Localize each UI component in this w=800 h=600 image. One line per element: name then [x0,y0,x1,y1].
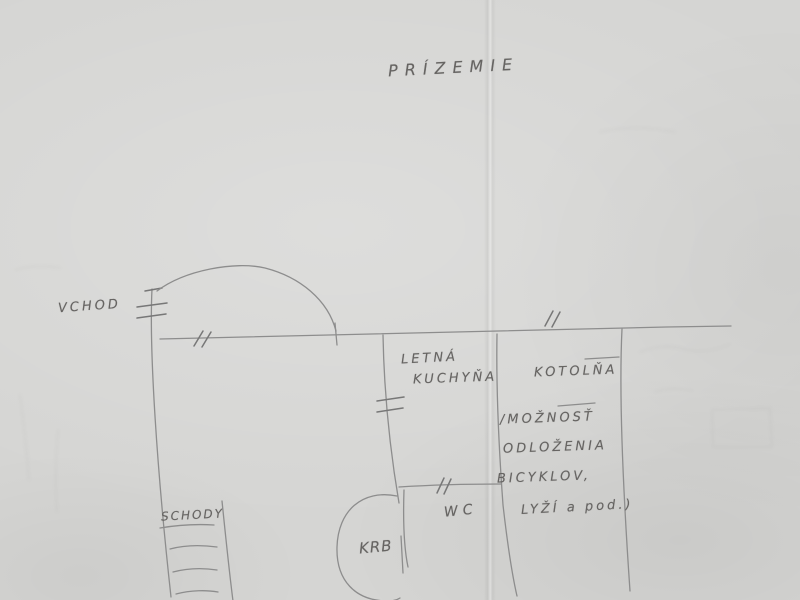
boiler-label-dash [585,357,619,359]
boiler-room-label: KOTOLŇA [534,364,618,380]
bleed-through-marks [15,128,772,512]
storage-note-line3: BICYKLOV, [497,469,591,485]
kitchen-door-marks [377,397,404,412]
kitchen-boiler-shared-wall [497,334,517,596]
arch-end-tick [335,323,337,345]
note-overline-dash [558,403,595,406]
entrance-arch-arc [157,266,336,331]
toilet-label: WC [443,502,478,519]
paper-sheet: PRÍZEMIE VCHOD LETNÁ KUCHYŇA KOTOLŇA /MO… [0,0,800,600]
kitchen-bottom-wall [399,484,501,487]
summer-kitchen-label-line2: KUCHYŇA [413,371,498,387]
wc-door-marks [437,478,451,494]
fireplace-label: KRB [358,539,393,557]
fireplace-tick [401,536,403,573]
storage-note-line2: ODLOŽENIA [503,439,607,456]
storage-note-line1: /MOŽNOSŤ [500,410,595,426]
door-opening-marks-left [194,331,211,347]
summer-kitchen-label-line1: LETNÁ [401,351,459,367]
boiler-room-right-wall [621,329,630,591]
left-wall-line [151,289,171,597]
wc-wall-line [404,490,408,567]
stairs-label: SCHODY [161,507,225,522]
door-opening-marks-right [545,311,560,327]
main-wall-line [160,326,731,339]
kitchen-left-wall [383,335,399,503]
